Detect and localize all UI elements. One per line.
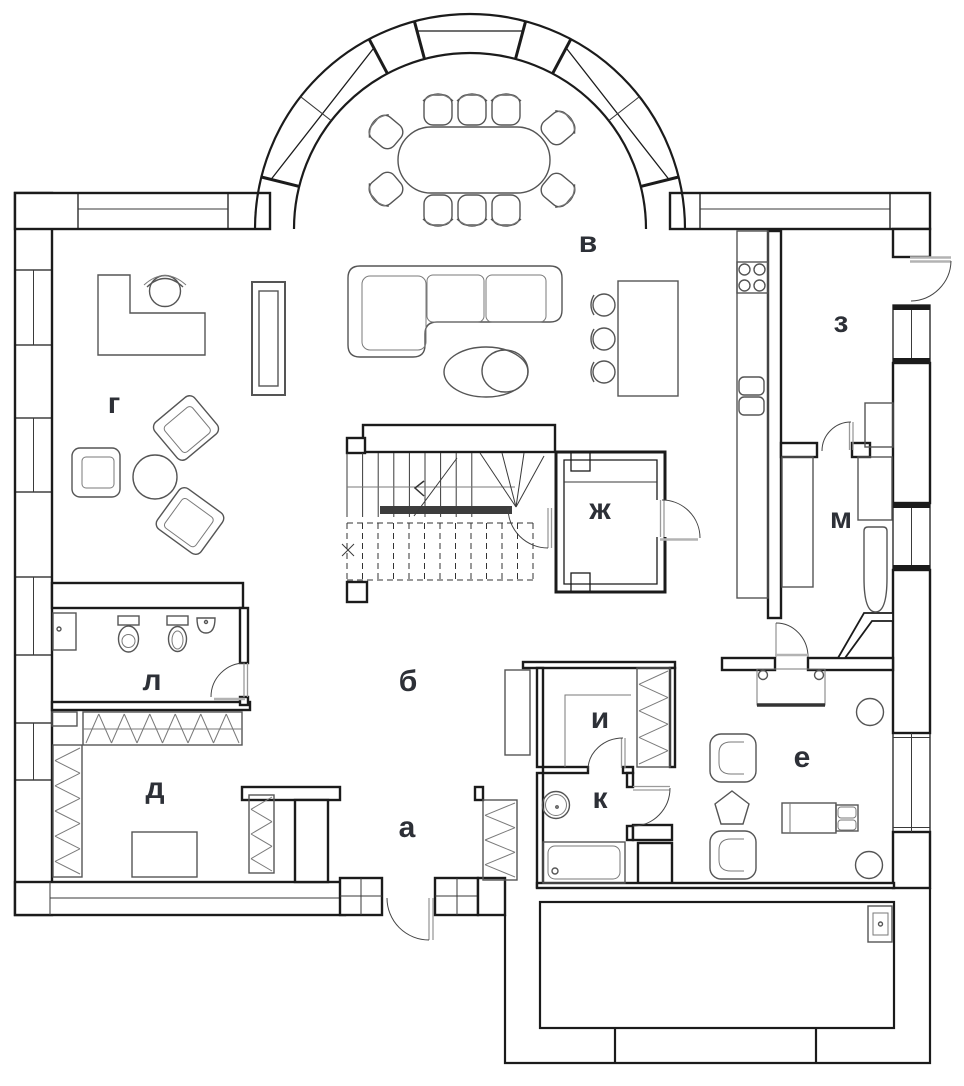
stair-lower-flight <box>347 523 533 580</box>
study-armchair-3 <box>72 448 120 497</box>
right-wall-window-pantry <box>893 305 930 363</box>
room-label-shower: м <box>830 504 852 534</box>
room-label-living: в <box>579 228 597 258</box>
pantry-cabinet <box>865 403 893 447</box>
dining-chairs <box>364 94 580 226</box>
room-label-wardrobe: д <box>145 774 164 804</box>
right-wall-window-bath <box>893 503 930 570</box>
room-label-bedroom: е <box>794 743 811 773</box>
arched-bay-window <box>255 14 685 229</box>
room-label-sauna: ж <box>589 495 610 525</box>
terrace <box>540 902 894 1028</box>
study-armchair-2 <box>153 485 226 557</box>
shower-tray <box>864 527 887 612</box>
bedroom-console <box>757 669 825 705</box>
dining-table <box>398 127 550 193</box>
staircase <box>342 453 544 580</box>
coffee-tables <box>444 347 528 397</box>
hall-wardrobe <box>505 670 530 755</box>
study-armchair-1 <box>151 393 222 463</box>
right-wall-window-bedroom <box>893 733 930 832</box>
room-label-hall: б <box>399 667 418 697</box>
room-label-study: г <box>108 389 121 419</box>
floor-plan: а б в г д е ж з и к л м <box>0 0 964 1086</box>
wc-fixtures <box>53 613 215 652</box>
bedroom-armchair-2 <box>710 831 756 879</box>
room-label-pantry: з <box>834 308 849 338</box>
bedroom-armchair-1 <box>710 734 756 782</box>
kitchen-island <box>591 281 678 396</box>
bathroom-fixtures <box>543 792 626 884</box>
bedroom-nightstand-1 <box>857 699 884 726</box>
study-desk <box>98 275 205 355</box>
study-round-table <box>133 455 177 499</box>
bed <box>782 803 858 833</box>
room-label-closet: и <box>591 704 609 734</box>
shower-cabinet-left <box>782 457 813 587</box>
shower-wardrobe <box>858 457 892 520</box>
sofa <box>348 266 562 357</box>
room-label-wc: л <box>142 666 161 696</box>
fireplace <box>252 282 285 395</box>
bedroom-nightstand-2 <box>856 852 883 879</box>
kitchen-counter <box>737 231 768 598</box>
bedroom-side-table <box>715 791 749 824</box>
room-label-entry: а <box>399 813 416 843</box>
floor-plan-drawing <box>0 0 964 1086</box>
entry-rack <box>483 800 517 880</box>
room-label-bath: к <box>592 784 607 814</box>
